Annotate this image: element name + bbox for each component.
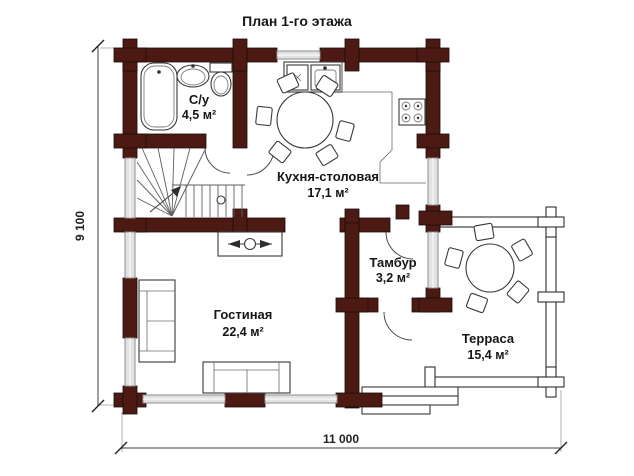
terrace-door-glazing: [428, 232, 438, 288]
log-joint: [538, 292, 564, 302]
washbasin: [177, 64, 209, 87]
log-joint: [419, 211, 452, 225]
log-joint: [345, 209, 359, 223]
window: [125, 232, 135, 278]
height-dimension-label: 9 100: [73, 211, 87, 241]
log-joint: [417, 134, 449, 148]
vestibule-entry-door-swing: [384, 312, 412, 340]
bathtub: [141, 63, 177, 130]
plan-title: План 1-го этажа: [242, 13, 352, 29]
loveseat: [139, 280, 175, 362]
log-joint: [123, 386, 137, 414]
fireplace: [218, 232, 282, 256]
toilet: [210, 63, 232, 96]
window: [125, 338, 135, 386]
window: [428, 158, 438, 205]
stove: [399, 99, 425, 125]
chair: [444, 247, 463, 268]
log-joint: [336, 298, 368, 312]
log-joint: [336, 393, 382, 407]
log-joint: [114, 134, 146, 148]
window: [277, 51, 320, 59]
sofa: [203, 362, 290, 393]
chair: [256, 106, 273, 125]
width-dimension-label: 11 000: [323, 432, 359, 446]
stair-newel: [217, 196, 225, 204]
living-room-label: Гостиная: [214, 307, 273, 322]
log-joint: [114, 48, 146, 62]
chair: [474, 223, 494, 241]
terrace-table-group: [444, 223, 533, 313]
living-room-area: 22,4 м²: [222, 325, 263, 339]
chair: [511, 238, 533, 261]
chair: [506, 280, 529, 303]
log-joint: [417, 48, 449, 62]
floor-plan-drawing: План 1-го этажа С/у 4,5 м² Кухня-столова…: [0, 0, 634, 476]
log-joint: [114, 218, 146, 232]
log-joint: [419, 298, 452, 312]
log-joint: [345, 39, 359, 71]
staircase: [137, 148, 245, 217]
window: [143, 395, 225, 403]
terrace-area: 15,4 м²: [467, 348, 508, 362]
vestibule-area: 3,2 м²: [376, 271, 410, 285]
bathroom-area: 4,5 м²: [182, 108, 216, 122]
kitchen-label: Кухня-столовая: [277, 169, 379, 184]
terrace-table: [466, 244, 514, 292]
log-joint: [233, 39, 247, 71]
terrace-label: Терраса: [462, 331, 515, 346]
bathroom-label: С/у: [189, 92, 210, 107]
window: [125, 158, 135, 218]
floor-plan-page: План 1-го этажа С/у 4,5 м² Кухня-столова…: [0, 0, 634, 476]
window: [265, 395, 337, 403]
chair: [466, 293, 488, 313]
bathroom-door-swing: [205, 148, 230, 173]
chair: [335, 120, 354, 141]
dining-table: [277, 92, 333, 148]
log-joint: [538, 377, 564, 387]
kitchen-area: 17,1 м²: [307, 186, 348, 200]
chair: [315, 144, 338, 166]
vestibule-label: Тамбур: [369, 255, 416, 270]
log-joint: [538, 217, 564, 227]
